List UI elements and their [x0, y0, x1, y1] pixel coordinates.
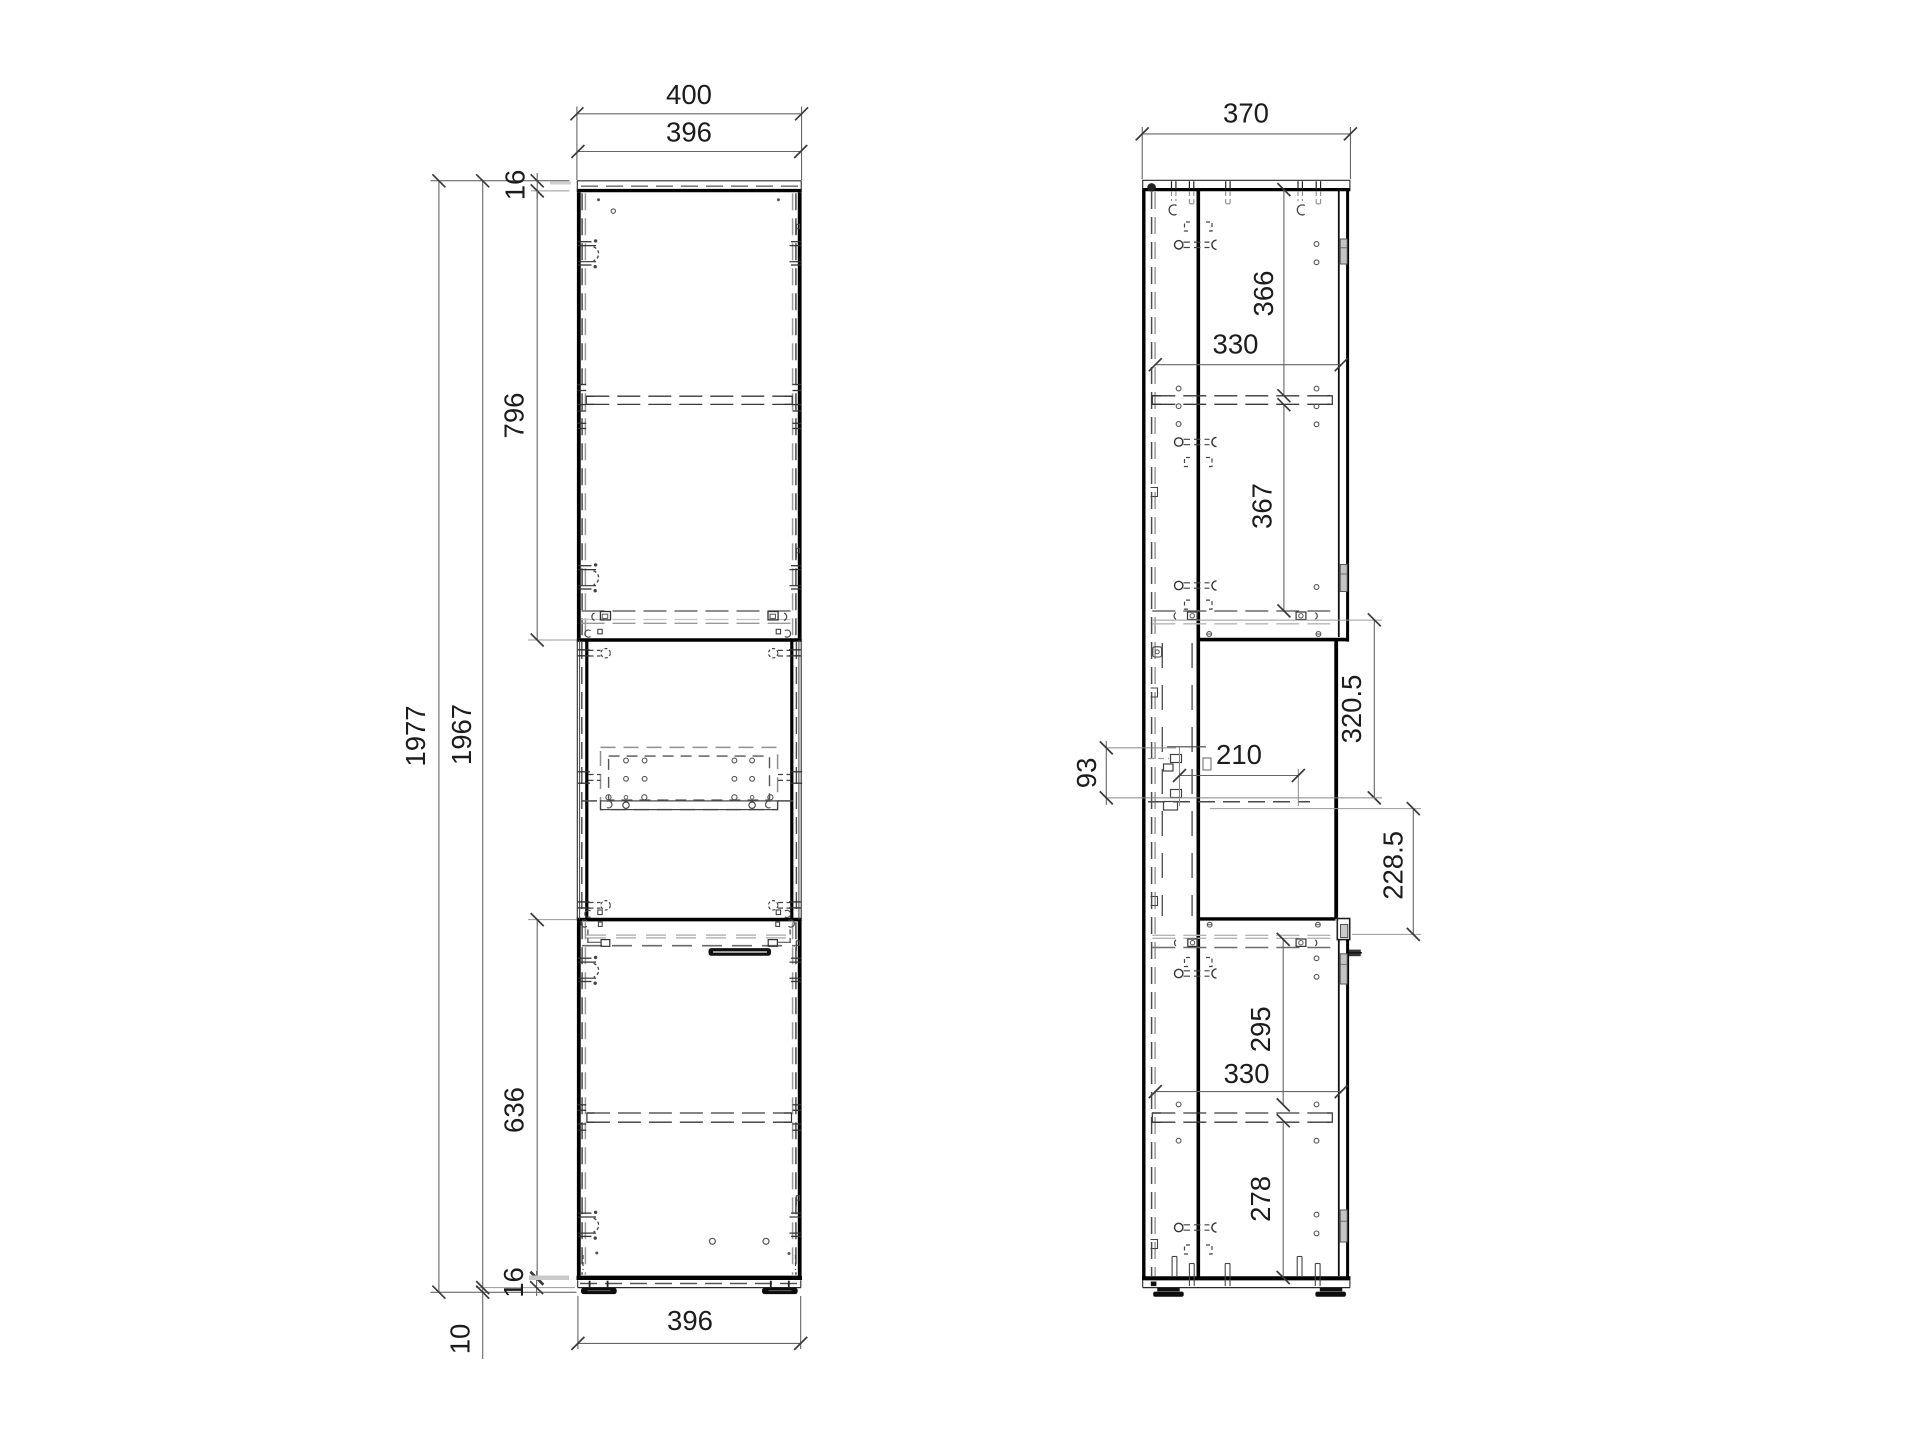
svg-text:210: 210 — [1216, 739, 1262, 770]
svg-text:10: 10 — [444, 1324, 475, 1355]
svg-text:396: 396 — [666, 116, 712, 147]
svg-text:1977: 1977 — [400, 705, 431, 766]
svg-text:400: 400 — [666, 79, 712, 110]
svg-text:295: 295 — [1245, 1006, 1276, 1052]
svg-text:330: 330 — [1213, 328, 1259, 359]
svg-text:1967: 1967 — [446, 704, 477, 765]
svg-text:93: 93 — [1071, 758, 1102, 789]
svg-text:16: 16 — [499, 170, 530, 201]
svg-text:330: 330 — [1224, 1058, 1270, 1089]
svg-text:636: 636 — [498, 1087, 529, 1133]
svg-text:366: 366 — [1248, 271, 1279, 317]
svg-text:396: 396 — [667, 1305, 713, 1336]
svg-text:370: 370 — [1223, 97, 1269, 128]
svg-text:796: 796 — [498, 393, 529, 439]
svg-text:228.5: 228.5 — [1378, 831, 1409, 900]
svg-text:320.5: 320.5 — [1336, 675, 1367, 744]
svg-text:278: 278 — [1245, 1176, 1276, 1222]
svg-text:367: 367 — [1246, 483, 1277, 529]
svg-text:16: 16 — [498, 1267, 529, 1298]
